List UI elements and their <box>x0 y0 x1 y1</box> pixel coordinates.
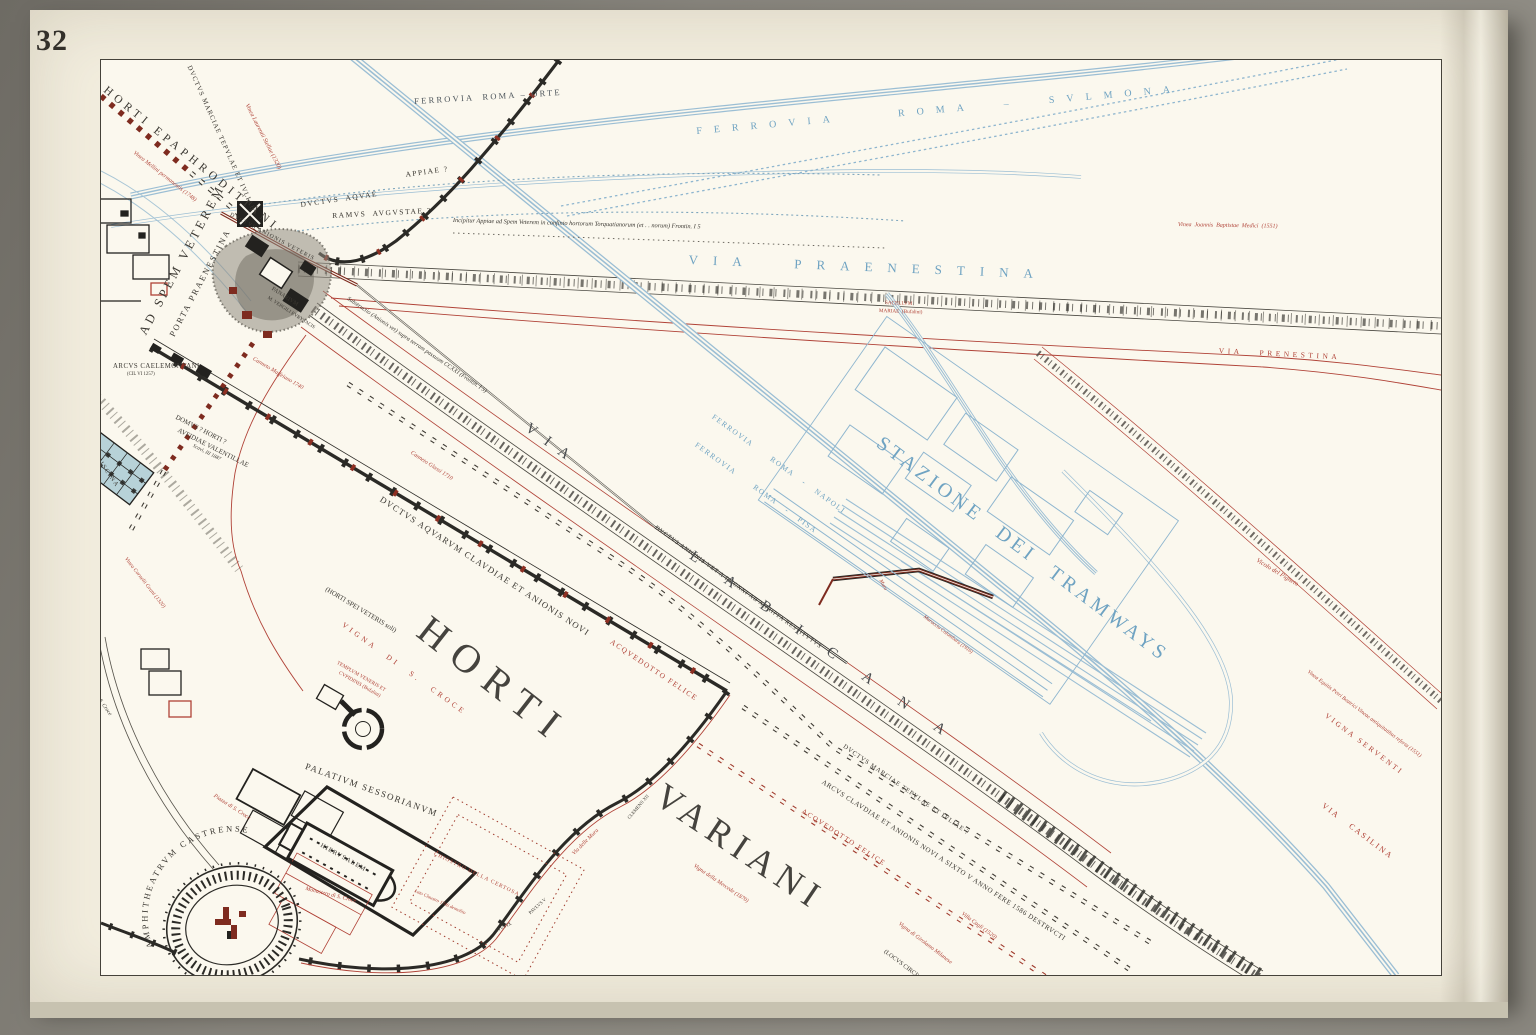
label-arcus-caelemontani: ARCVS CAELEMONTANI <box>113 364 200 371</box>
page-number: 32 <box>36 24 68 58</box>
page-edge-strip <box>30 1002 1508 1018</box>
amphitheatrum-plan <box>148 846 317 976</box>
atlas-page: 32 <box>30 10 1508 1002</box>
label-sacellum-1: SACELLVM <box>885 301 913 307</box>
map-linework: AMPHITHEATRVM CASTRENSE <box>100 59 1442 976</box>
chain-arcus-claudiae <box>743 707 1129 969</box>
wall-aurelian-south <box>299 691 730 973</box>
amphitheatrum-interior <box>215 907 246 939</box>
scan-background: 32 <box>0 0 1536 1035</box>
map-area: AMPHITHEATRVM CASTRENSE <box>100 59 1442 976</box>
arcus-caelemontani-marks <box>150 343 212 379</box>
page-curl-shadow <box>1440 10 1508 1002</box>
incipit-dotted-line <box>453 233 886 248</box>
label-arcus-caelemontani-ref: (CIL VI 1257) <box>127 373 155 378</box>
palatium-walls <box>223 764 475 935</box>
chiostro-certosa-plan <box>392 797 584 976</box>
via-praenestina-road <box>298 262 1441 390</box>
vicolo-del-pigneto-road <box>1034 347 1441 709</box>
